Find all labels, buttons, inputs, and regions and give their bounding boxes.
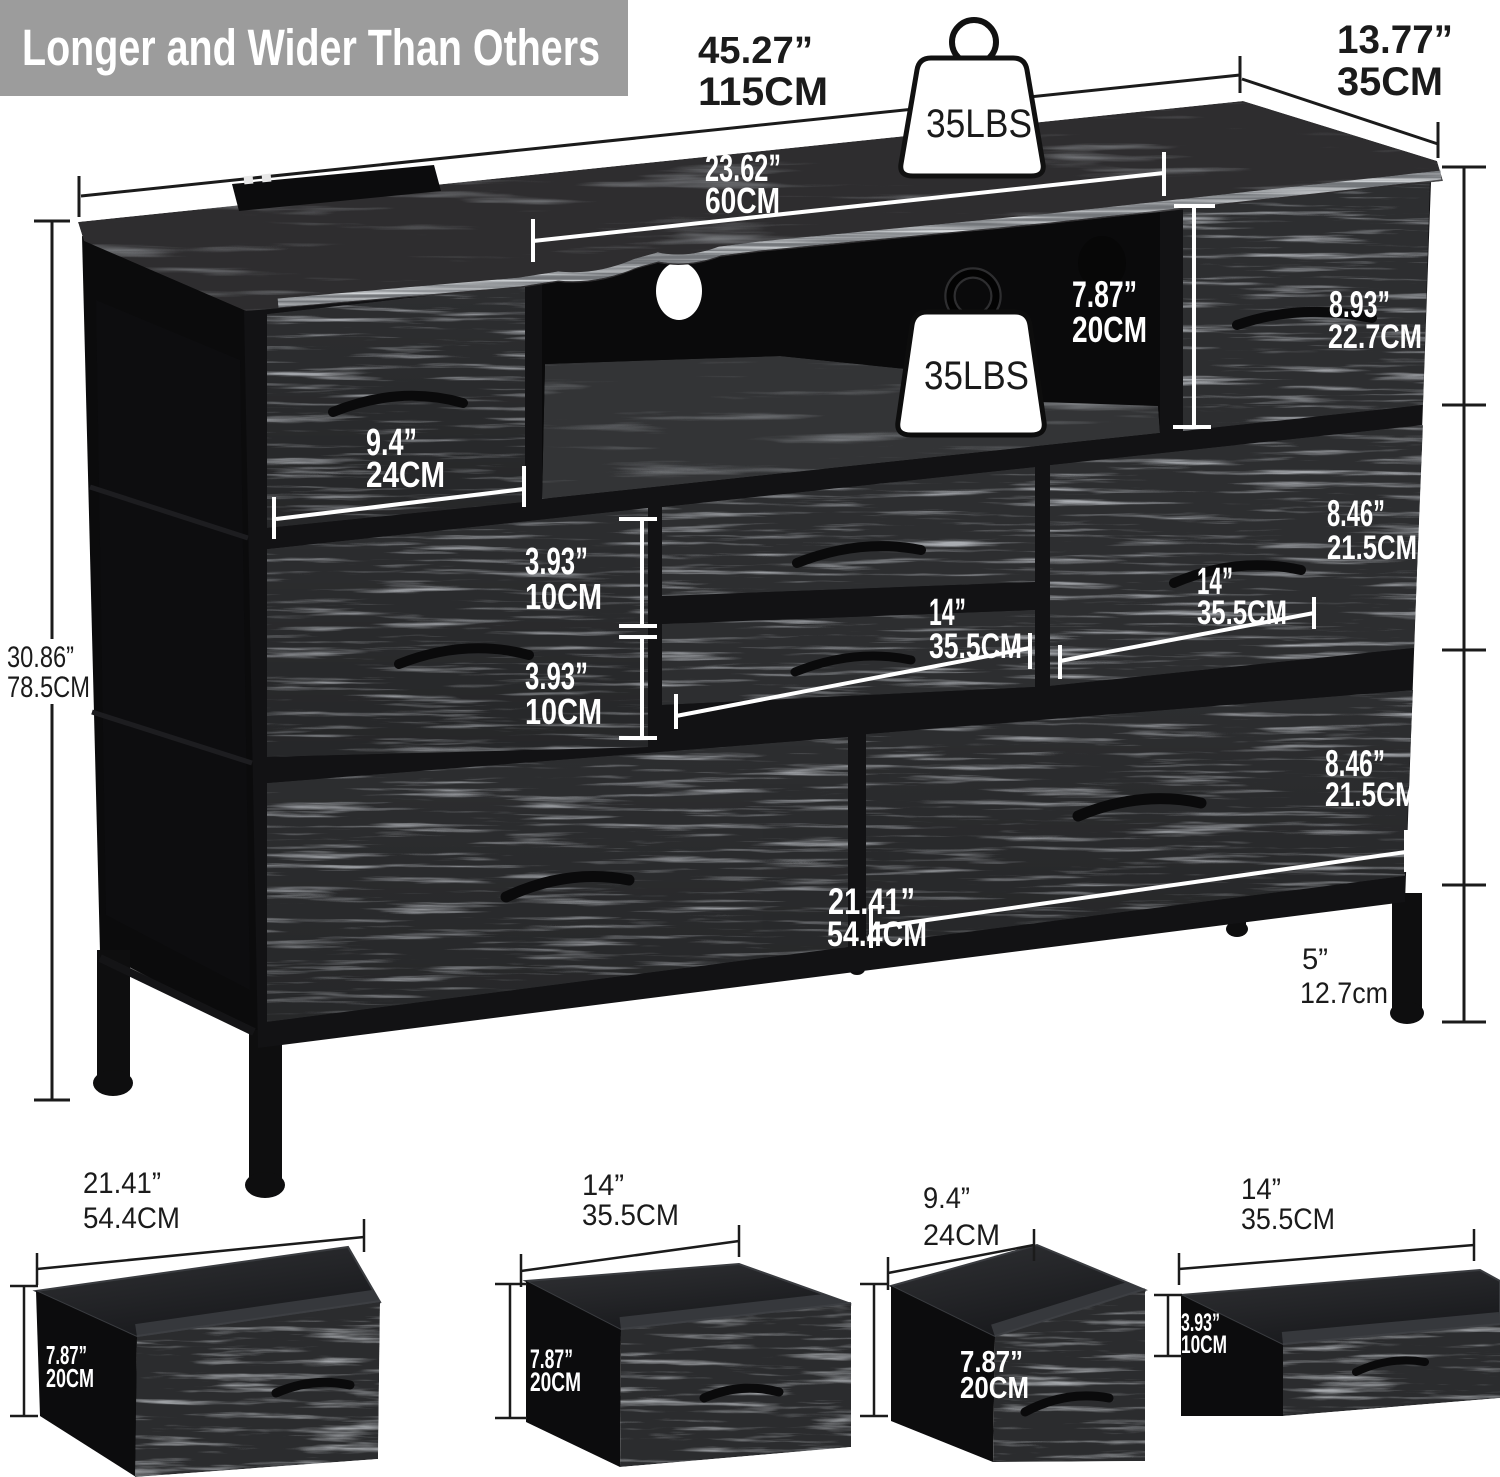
svg-text:8.46”: 8.46” [1327,493,1385,534]
svg-text:12.7cm: 12.7cm [1300,977,1388,1010]
svg-text:24CM: 24CM [923,1219,1000,1252]
svg-text:14”: 14” [582,1169,624,1202]
svg-text:20CM: 20CM [46,1363,94,1393]
svg-text:115CM: 115CM [698,70,828,114]
svg-text:14”: 14” [1241,1173,1281,1206]
svg-text:5”: 5” [1302,943,1328,976]
svg-text:35LBS: 35LBS [924,354,1029,398]
svg-text:54.4CM: 54.4CM [827,915,927,954]
svg-text:35CM: 35CM [1337,60,1443,104]
svg-text:22.7CM: 22.7CM [1328,318,1422,356]
svg-text:35.5CM: 35.5CM [1197,594,1287,632]
svg-text:10CM: 10CM [525,576,602,617]
svg-text:24CM: 24CM [366,454,445,495]
svg-text:21.5CM: 21.5CM [1325,776,1417,814]
svg-text:45.27”: 45.27” [698,30,813,72]
svg-text:30.86”: 30.86” [7,641,74,674]
svg-text:60CM: 60CM [705,180,780,221]
svg-text:35LBS: 35LBS [926,102,1032,146]
svg-text:35.5CM: 35.5CM [582,1199,679,1232]
svg-text:21.5CM: 21.5CM [1327,529,1417,567]
svg-text:20CM: 20CM [530,1367,581,1397]
svg-text:10CM: 10CM [525,691,602,732]
svg-text:21.41”: 21.41” [83,1167,161,1200]
svg-text:Longer and Wider Than Others: Longer and Wider Than Others [22,19,600,76]
svg-text:13.77”: 13.77” [1337,18,1453,62]
svg-text:54.4CM: 54.4CM [83,1202,180,1235]
svg-text:9.4”: 9.4” [923,1182,970,1215]
svg-text:10CM: 10CM [1181,1331,1227,1359]
svg-text:78.5CM: 78.5CM [7,671,90,704]
svg-text:35.5CM: 35.5CM [929,627,1022,666]
svg-text:20CM: 20CM [1072,309,1147,350]
svg-text:20CM: 20CM [960,1370,1029,1405]
svg-text:35.5CM: 35.5CM [1241,1203,1335,1236]
